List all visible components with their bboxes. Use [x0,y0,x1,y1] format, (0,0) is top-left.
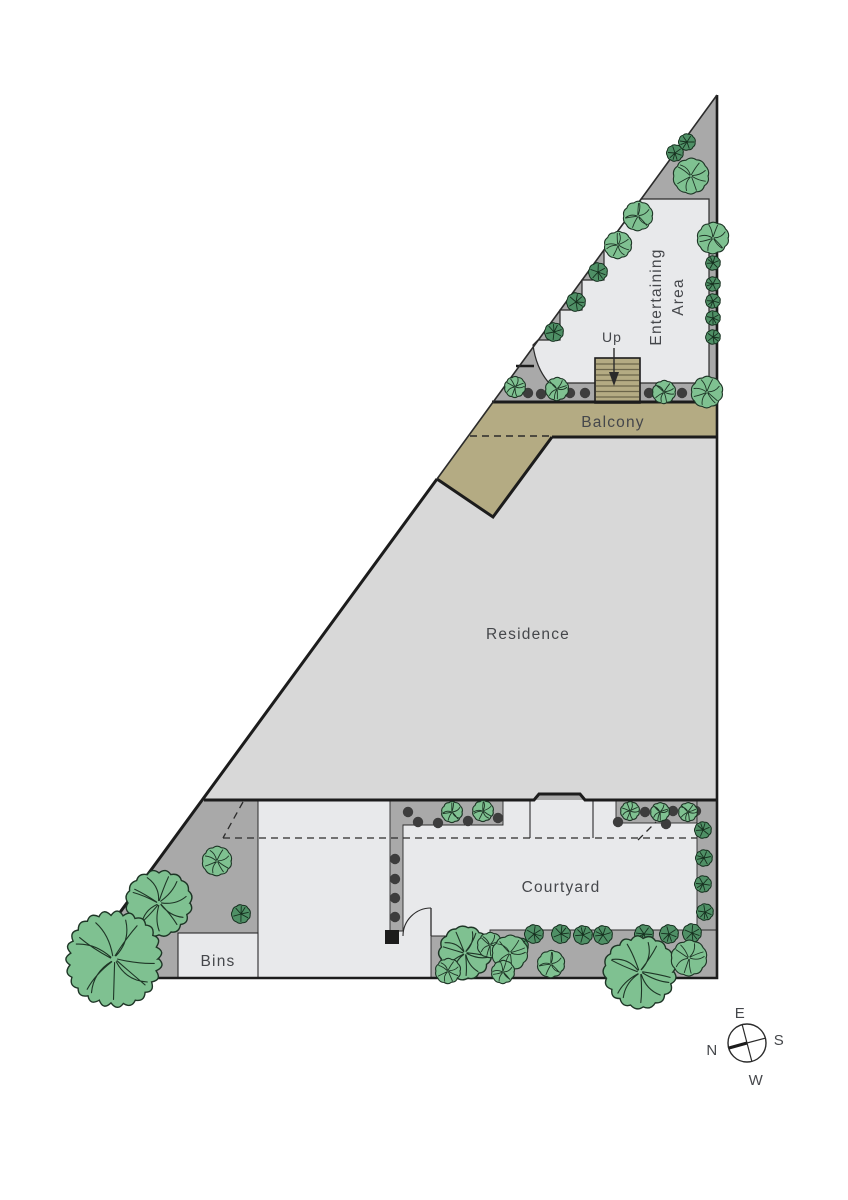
shrub-icon [544,323,563,342]
tree-icon [651,803,670,822]
shrub-icon [659,925,678,944]
compass-north-needle [729,1043,747,1048]
tree-icon [673,158,708,194]
tree-icon [697,222,728,254]
entertaining-label-line1: Entertaining [648,248,665,345]
entertaining-label-line2: Area [670,278,687,316]
site-plan-page: Entertaining Area Up Balcony Residence C… [0,0,848,1200]
compass-label-north: N [706,1042,717,1059]
residence-label: Residence [486,626,570,643]
tree-icon [202,846,231,876]
stair-treads [596,364,639,397]
shrub-icon [593,926,612,945]
tree-icon [546,377,569,400]
shrub-icon [566,293,585,312]
shrub-icon [706,277,721,292]
planting-dot-icon [390,854,400,864]
tree-icon [679,803,698,822]
planting-dot-icon [640,807,650,817]
tree-icon [473,800,494,821]
planting-dot-icon [390,893,400,903]
tree-icon [505,376,526,397]
shrub-icon [706,330,721,345]
tree-icon [691,376,722,408]
tree-icon [492,960,515,983]
shrub-icon [666,145,683,162]
compass-label-south: S [774,1032,785,1049]
bins-label: Bins [201,953,236,970]
planting-dot-icon [677,388,687,398]
planting-dot-icon [413,817,423,827]
planting-dot-icon [390,874,400,884]
shrub-icon [551,925,570,944]
tree-icon [442,801,463,822]
site-plan-svg: Entertaining Area Up Balcony Residence C… [0,0,848,1200]
tree-icon [66,911,162,1007]
shrub-icon [682,924,701,943]
planting-dot-icon [433,818,443,828]
planting-dot-icon [390,912,400,922]
shrub-icon [695,850,712,867]
tree-icon [605,231,632,258]
planting-dot-icon [463,816,473,826]
tree-icon [671,940,706,976]
courtyard-label: Courtyard [522,879,601,896]
compass-label-east: E [735,1005,746,1022]
planting-dot-icon [493,813,503,823]
stairs [595,358,640,403]
shrub-icon [573,926,592,945]
planting-dot-icon [613,817,623,827]
tree-icon [538,950,565,977]
shrub-icon [694,822,711,839]
gate-post [385,930,399,944]
shrub-icon [706,294,721,309]
up-label: Up [602,329,622,345]
compass-label-west: W [749,1072,764,1089]
tree-icon [653,380,676,403]
shrub-icon [696,904,713,921]
planting-dot-icon [536,389,546,399]
tree-icon [436,958,461,983]
shrub-icon [706,256,721,271]
shrub-icon [694,876,711,893]
shrub-icon [706,311,721,326]
shrub-icon [231,905,250,924]
planting-dot-icon [580,388,590,398]
shrub-icon [588,263,607,282]
tree-icon [621,802,640,821]
planting-dot-icon [403,807,413,817]
tree-icon [603,936,676,1009]
tree-icon [623,201,652,231]
balcony-label: Balcony [581,414,645,431]
shrub-icon [524,925,543,944]
compass-rose: E S W N [706,1005,784,1089]
